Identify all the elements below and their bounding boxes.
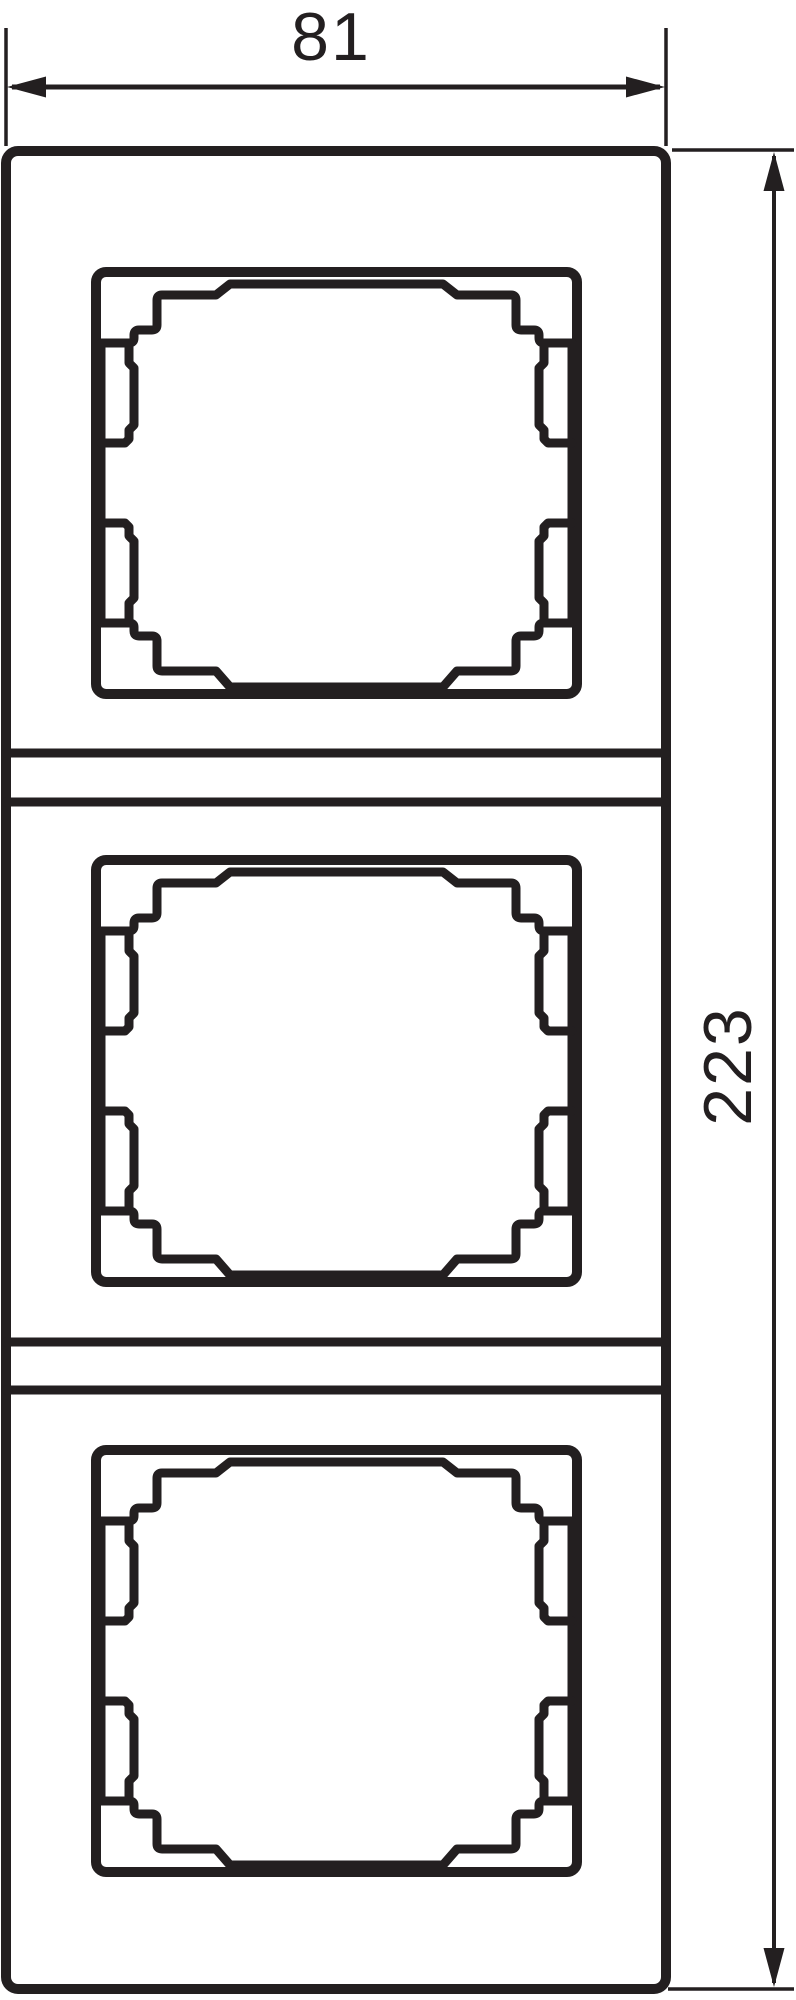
height-arrow-up-icon [764, 152, 785, 191]
technical-drawing: 81 223 [0, 0, 796, 2000]
width-arrow-right-icon [626, 77, 665, 98]
height-dimension-label: 223 [690, 1006, 766, 1125]
dimension-labels: 81 223 [291, 0, 766, 1126]
width-arrow-left-icon [7, 77, 46, 98]
dimension-annotations: 81 223 [6, 0, 794, 1989]
product-linework [6, 151, 666, 1989]
width-dimension-label: 81 [291, 0, 371, 75]
module-opening-3 [96, 1450, 577, 1872]
module-opening-2 [96, 860, 577, 1282]
module-opening-1 [96, 272, 577, 694]
technical-drawing-page: 81 223 [0, 0, 796, 2000]
height-arrow-down-icon [764, 1948, 785, 1987]
